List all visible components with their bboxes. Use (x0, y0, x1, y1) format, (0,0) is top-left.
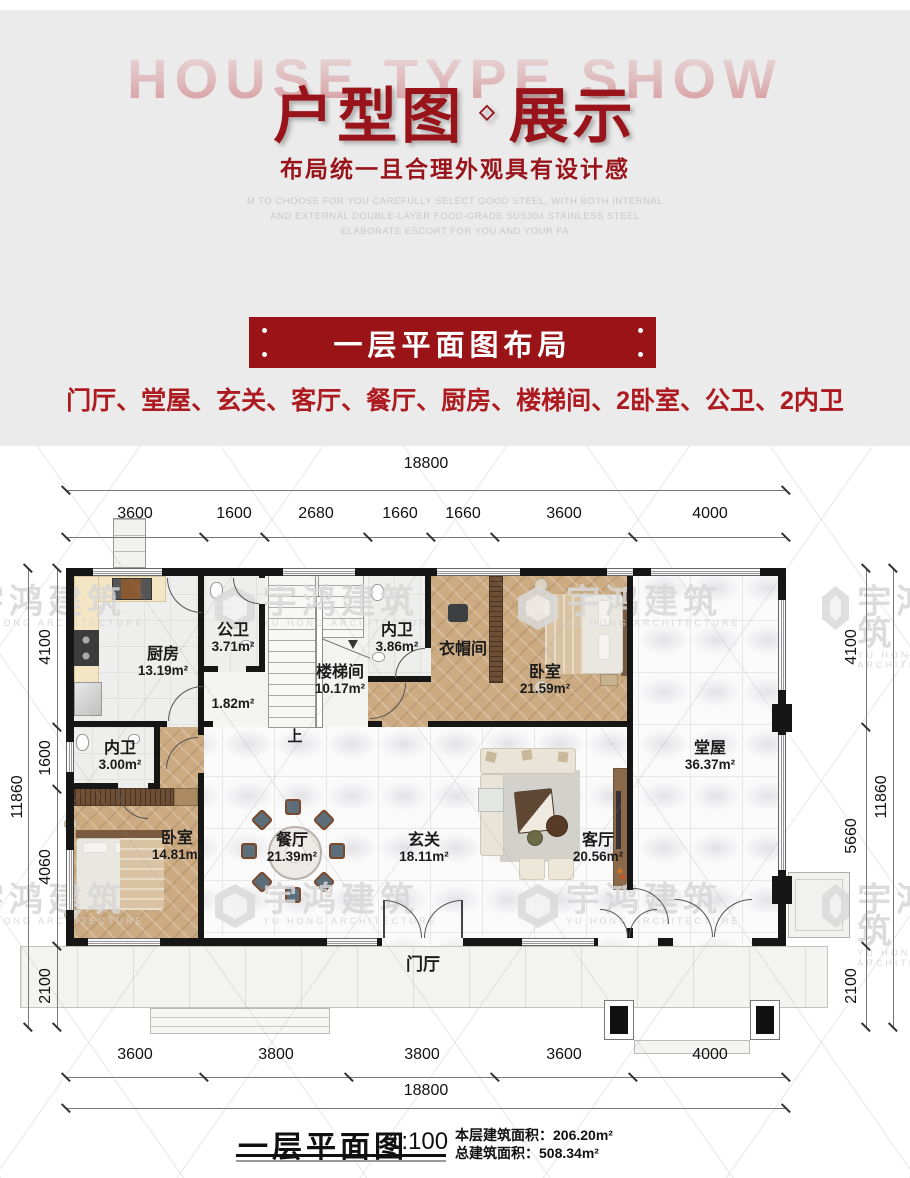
kitchen-fridge (74, 682, 102, 716)
stairwell-label: 楼梯间10.17m² (300, 664, 380, 696)
tv-cabinet (613, 768, 628, 890)
window (283, 568, 355, 576)
dim-total-top: 18800 (404, 455, 449, 473)
wall-outer-bottom (658, 938, 673, 946)
inner-bath2-label: 内卫3.00m² (80, 740, 160, 772)
dim-value: 2680 (298, 505, 334, 523)
cloak-wardrobe (489, 575, 503, 683)
nook-area-label: 1.82m² (193, 696, 273, 711)
dim-value: 4000 (692, 1046, 728, 1064)
watermark-en: YU HONG ARCHITECTURE (566, 618, 741, 628)
foyer-label: 玄关18.11m² (384, 832, 464, 864)
ottoman (519, 858, 545, 880)
watermark-cn: 宇鸿建筑 (566, 586, 741, 618)
dim-line (28, 568, 29, 1027)
wall-toprow-bottom (428, 721, 627, 727)
dim-total-right: 11860 (873, 775, 891, 818)
dining-chair (285, 799, 301, 815)
dim-line (66, 537, 786, 538)
dim-value: 3800 (404, 1046, 440, 1064)
total-area-label: 总建筑面积： (455, 1145, 539, 1161)
dim-value: 1660 (445, 505, 481, 523)
window (607, 568, 633, 576)
wall-pubbath-bottom (246, 666, 265, 672)
wall-toprow-bottom (203, 721, 213, 727)
bedroom1-label: 卧室21.59m² (505, 664, 585, 696)
title-left: 户型图 (273, 68, 465, 155)
diamond-icon: ◇ (479, 99, 494, 124)
porch-column (604, 1000, 634, 1040)
section-banner: 一层平面图布局 (249, 317, 656, 368)
banner-label: 一层平面图布局 (249, 317, 656, 368)
banner-dot (262, 328, 267, 333)
total-area-row: 总建筑面积：508.34m² (455, 1144, 613, 1162)
column-block (772, 704, 792, 732)
dim-value: 5660 (843, 818, 861, 854)
dim-total-left: 11860 (9, 775, 27, 818)
desc-line: AND EXTERNAL DOUBLE-LAYER FOOD-GRADE SUS… (0, 209, 910, 224)
bedroom2-label: 卧室14.81m² (137, 830, 217, 862)
living-label: 客厅20.56m² (558, 832, 638, 864)
window (88, 938, 160, 946)
dim-value: 1600 (216, 505, 252, 523)
banner-dot (638, 328, 643, 333)
window (651, 568, 760, 576)
caption-scale: 1:100 (388, 1128, 448, 1156)
english-description: M TO CHOOSE FOR YOU CAREFULLY SELECT GOO… (0, 194, 910, 239)
window (66, 850, 74, 910)
dim-value: 3800 (258, 1046, 294, 1064)
bedroom2-shelf (174, 788, 198, 806)
title-right: 展示 (509, 68, 637, 155)
dim-line (66, 1077, 786, 1078)
floor-area-row: 本层建筑面积：206.20m² (455, 1126, 613, 1144)
subtitle: 布局统一且合理外观具有设计感 (0, 150, 910, 184)
yuhong-logo-icon (822, 884, 849, 928)
bed1-pillow (598, 634, 610, 660)
floor-area-label: 本层建筑面积： (455, 1127, 553, 1143)
caption-areas: 本层建筑面积：206.20m² 总建筑面积：508.34m² (455, 1126, 613, 1162)
dim-value: 4100 (843, 629, 861, 665)
wall-toprow-bottom (368, 721, 382, 727)
dim-value: 4000 (692, 505, 728, 523)
window (522, 938, 594, 946)
side-table (478, 788, 504, 812)
dim-value: 2100 (843, 968, 861, 1004)
dim-value: 2100 (37, 968, 55, 1004)
dim-value: 3600 (117, 1046, 153, 1064)
main-hall-label: 堂屋36.37m² (670, 740, 750, 772)
column-block (772, 876, 792, 904)
sofa-pillow (557, 751, 568, 762)
sofa-left (480, 774, 504, 856)
dim-line (66, 490, 786, 491)
desc-line: ELABORATE ESCORT FOR YOU AND YOUR FA (0, 224, 910, 239)
watermark-cn: 宇鸿建筑 (263, 586, 438, 618)
dim-line (893, 568, 894, 1027)
kitchen-stove (74, 630, 99, 666)
kitchen-label: 厨房13.19m² (123, 646, 203, 678)
banner-dot (262, 352, 267, 357)
dim-line (66, 1108, 786, 1109)
porch-label: 门厅 (383, 956, 463, 973)
porch-column (750, 1000, 780, 1040)
wall-pubbath-right (259, 568, 265, 578)
wall-outer-bottom (752, 938, 786, 946)
dim-value: 4100 (37, 629, 55, 665)
stool (527, 830, 543, 846)
floor-area-value: 206.20m² (553, 1127, 613, 1143)
wall-bedroom2-right (198, 727, 204, 735)
page-title: 户型图 ◇ 展示 (0, 68, 910, 155)
window (93, 568, 162, 576)
window (437, 568, 520, 576)
caption-underline (236, 1154, 446, 1157)
chimney (113, 518, 146, 568)
dim-value: 3600 (546, 1046, 582, 1064)
porch-steps-left (150, 1008, 330, 1034)
top-strip (0, 0, 910, 10)
dim-value: 1660 (382, 505, 418, 523)
bed2-pillow (82, 842, 108, 853)
yuhong-logo-icon (822, 586, 849, 630)
window (66, 742, 74, 772)
banner-dot (638, 352, 643, 357)
dining-label: 餐厅21.39m² (252, 832, 332, 864)
yuhong-logo-icon (215, 884, 255, 928)
dim-line (57, 568, 58, 1027)
cloakroom-label: 衣帽间 (423, 641, 503, 658)
dim-value: 3600 (117, 505, 153, 523)
dim-value: 4060 (37, 849, 55, 885)
public-bath-label: 公卫3.71m² (193, 622, 273, 654)
dim-value: 1600 (37, 740, 55, 776)
wall-innerbath2-bottom (66, 783, 118, 789)
wall-pubbath-bottom (204, 666, 218, 672)
stair-up-label: 上 (275, 728, 315, 745)
caption-underline (236, 1160, 446, 1162)
wall-toprow-bottom (66, 721, 167, 727)
bedside-cabinet (600, 674, 618, 686)
window (327, 938, 377, 946)
dim-total-bottom: 18800 (404, 1082, 449, 1100)
cloak-chair (448, 604, 468, 622)
wall-innerbath2-bottom (148, 783, 160, 789)
dim-value: 3600 (546, 505, 582, 523)
window (778, 600, 786, 690)
dim-line (866, 568, 867, 1027)
sofa-pillow (521, 749, 533, 761)
desc-line: M TO CHOOSE FOR YOU CAREFULLY SELECT GOO… (0, 194, 910, 209)
window (778, 735, 786, 870)
yuhong-logo-icon (518, 884, 558, 928)
page: HOUSE TYPE SHOW 户型图 ◇ 展示 布局统一且合理外观具有设计感 … (0, 0, 910, 1178)
room-list: 门厅、堂屋、玄关、客厅、餐厅、厨房、楼梯间、2卧室、公卫、2内卫 (0, 381, 910, 417)
total-area-value: 508.34m² (539, 1145, 599, 1161)
yuhong-logo-icon (518, 586, 558, 630)
